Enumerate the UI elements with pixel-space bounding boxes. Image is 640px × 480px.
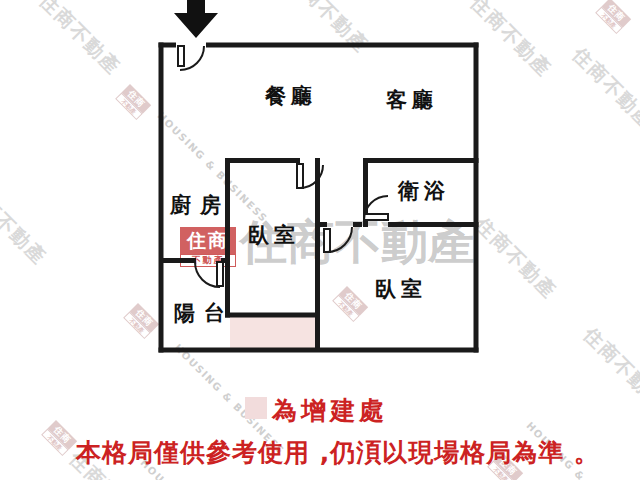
room-label-dining: 餐廳 (265, 82, 317, 110)
addition-swatch (245, 397, 267, 419)
room-label-kitchen: 廚房 (170, 191, 230, 219)
addition-area (230, 317, 315, 348)
entrance-arrow-icon (174, 0, 218, 38)
balcony-door (217, 262, 223, 286)
bathroom-door (364, 214, 388, 220)
room-label-bedroom-center: 臥室 (248, 221, 300, 249)
room-label-living: 客廳 (386, 86, 438, 114)
bedroom-right-door (324, 229, 330, 252)
bedroom-center-door (297, 164, 303, 188)
room-label-bedroom-right: 臥室 (375, 275, 427, 303)
disclaimer-text: 本格局僅供參考使用 ,仍湏以現場格局為準 。 (76, 436, 600, 469)
entrance-door (178, 46, 184, 66)
room-label-balcony: 陽台 (174, 299, 234, 327)
addition-legend-label: 為增建處 (272, 394, 388, 427)
floorplan-image: 住商不動產 住商 不動產 HOUSING & BUSINESS 住商不動產 住商… (0, 0, 640, 480)
room-label-bathroom: 衛浴 (398, 177, 450, 205)
